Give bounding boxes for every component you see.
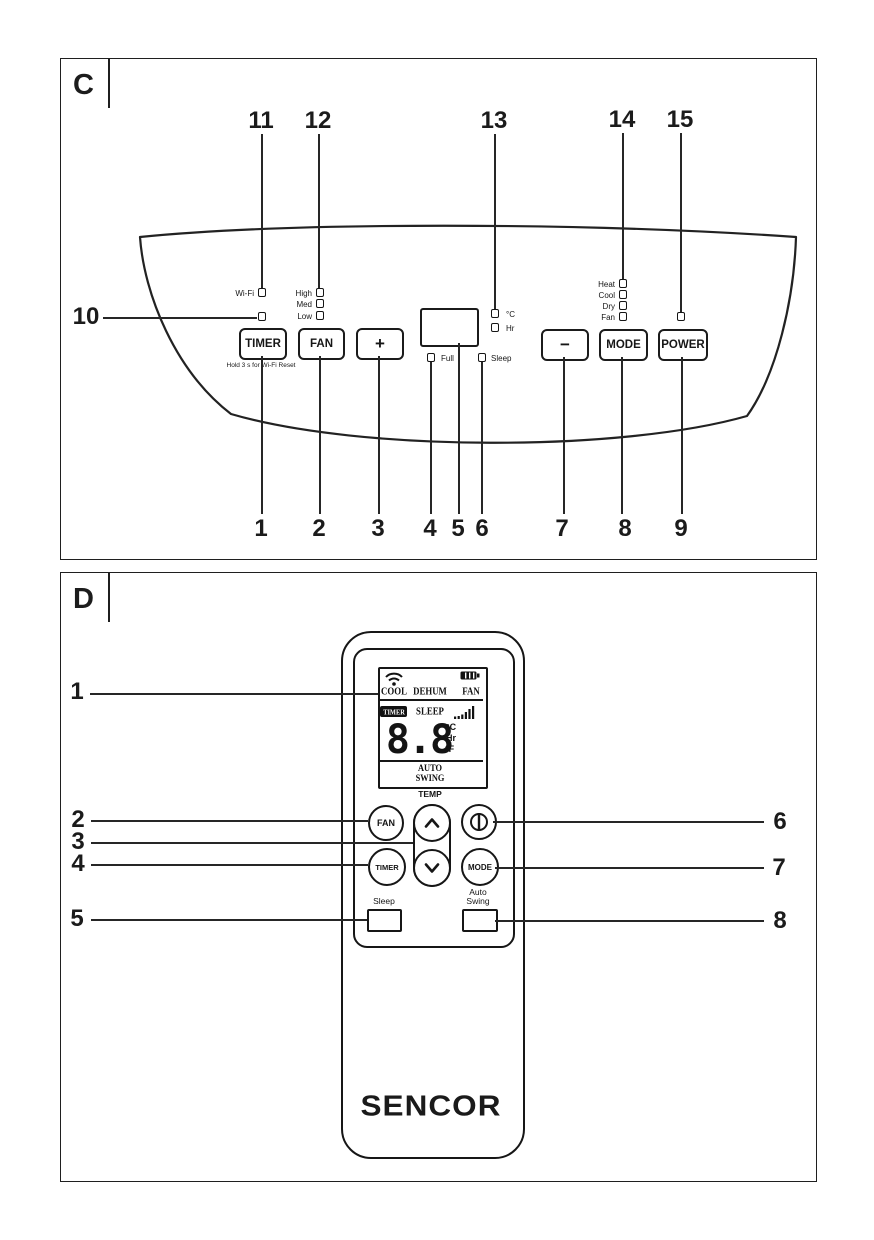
callout-3: 3 <box>371 515 384 543</box>
timer-led <box>258 312 266 321</box>
sleep-label: Sleep <box>491 355 511 363</box>
callout-11: 11 <box>248 107 273 135</box>
lcd-fan: FAN <box>462 687 479 698</box>
power-button: POWER <box>658 329 708 361</box>
remote-power-button <box>461 804 497 840</box>
callout-d4: 4 <box>71 850 84 878</box>
hr-led <box>491 323 499 332</box>
callout-d8: 8 <box>773 907 786 935</box>
callout-line-10 <box>103 317 257 319</box>
dry-led <box>619 301 627 310</box>
figure-d-label: D <box>73 583 94 616</box>
cool-label: Cool <box>579 292 615 300</box>
fan-low-led <box>316 311 324 320</box>
fan-med-label: Med <box>276 301 312 309</box>
callout-d5: 5 <box>70 905 83 933</box>
lcd-swing: SWING <box>416 774 445 784</box>
lcd-unit-celsius: °C <box>446 723 456 732</box>
callout-line-3 <box>378 356 380 514</box>
heat-label: Heat <box>579 281 615 289</box>
lcd-auto: AUTO <box>418 764 442 774</box>
callout-7: 7 <box>555 515 568 543</box>
callout-line-d7 <box>495 867 764 869</box>
callout-line-d4 <box>91 864 368 866</box>
figure-d-separator <box>108 573 110 622</box>
remote-autoswing-label-2: Swing <box>466 897 489 906</box>
callout-line-5 <box>458 343 460 514</box>
callout-line-d1 <box>90 693 378 695</box>
lcd-dehum: DEHUM <box>413 687 447 698</box>
figure-c-frame: C 11 12 13 14 15 10 Wi-Fi High Med Low <box>60 58 817 560</box>
callout-8: 8 <box>618 515 631 543</box>
temp-down-button <box>413 849 451 887</box>
callout-d1: 1 <box>70 678 83 706</box>
callout-line-1 <box>261 356 263 514</box>
fan-high-led <box>316 288 324 297</box>
remote-sleep-label: Sleep <box>373 897 395 906</box>
mode-button: MODE <box>599 329 648 361</box>
callout-line-6 <box>481 362 483 514</box>
power-led <box>677 312 685 321</box>
lcd-cool: COOL <box>381 687 407 698</box>
callout-line-8 <box>621 357 623 514</box>
callout-4: 4 <box>423 515 436 543</box>
callout-line-2 <box>319 356 321 514</box>
plus-button: + <box>356 328 404 360</box>
fan-mode-label: Fan <box>579 314 615 322</box>
fan-low-label: Low <box>276 313 312 321</box>
callout-5: 5 <box>451 515 464 543</box>
lcd-divider-bottom <box>379 760 483 762</box>
callout-d6: 6 <box>773 808 786 836</box>
fan-button: FAN <box>298 328 345 360</box>
cool-led <box>619 290 627 299</box>
dry-label: Dry <box>579 303 615 311</box>
fan-high-label: High <box>276 290 312 298</box>
callout-line-9 <box>681 357 683 514</box>
battery-icon <box>460 671 480 680</box>
fan-mode-led <box>619 312 627 321</box>
callout-line-d2 <box>91 820 368 822</box>
temp-label: TEMP <box>418 790 442 799</box>
remote-timer-button: TIMER <box>368 848 406 886</box>
lcd-digits: 8.8 <box>386 717 452 763</box>
full-led <box>427 353 435 362</box>
celsius-led <box>491 309 499 318</box>
chevron-up-icon <box>424 818 440 828</box>
callout-9: 9 <box>674 515 687 543</box>
hr-label: Hr <box>506 325 514 333</box>
remote-autoswing-button <box>462 909 498 932</box>
callout-line-d6 <box>493 821 764 823</box>
signal-bars-icon <box>454 705 478 719</box>
callout-line-11 <box>261 134 263 290</box>
timer-button: TIMER <box>239 328 287 360</box>
lcd-divider-top <box>379 699 483 701</box>
brand-logo: SENCOR <box>360 1091 501 1123</box>
full-label: Full <box>441 355 454 363</box>
callout-10: 10 <box>73 303 100 331</box>
figure-d-frame: D COOL DEHUM FAN TIMER SLEEP <box>60 572 817 1182</box>
remote-fan-button: FAN <box>368 805 404 841</box>
callout-line-7 <box>563 357 565 514</box>
remote-mode-button: MODE <box>461 848 499 886</box>
lcd-unit-hr: Hr <box>446 734 456 743</box>
panel-display <box>420 308 479 347</box>
fan-med-led <box>316 299 324 308</box>
heat-led <box>619 279 627 288</box>
minus-button: − <box>541 329 589 361</box>
lcd-sleep: SLEEP <box>416 707 444 718</box>
callout-line-d3 <box>91 842 413 844</box>
lcd-unit-fahrenheit: °F <box>445 745 454 754</box>
callout-1: 1 <box>254 515 267 543</box>
callout-line-4 <box>430 362 432 514</box>
lcd-timer-badge: TIMER <box>380 706 407 717</box>
callout-15: 15 <box>667 106 694 134</box>
wifi-led <box>258 288 266 297</box>
callout-13: 13 <box>481 107 508 135</box>
wifi-icon <box>384 671 404 687</box>
callout-line-14 <box>622 133 624 280</box>
manual-page: C 11 12 13 14 15 10 Wi-Fi High Med Low <box>0 0 874 1240</box>
callout-14: 14 <box>609 106 636 134</box>
callout-line-13 <box>494 134 496 311</box>
callout-line-d5 <box>91 919 367 921</box>
callout-2: 2 <box>312 515 325 543</box>
remote-sleep-button <box>367 909 402 932</box>
power-icon <box>468 811 490 833</box>
sleep-led <box>478 353 486 362</box>
callout-d7: 7 <box>772 854 785 882</box>
callout-line-15 <box>680 133 682 314</box>
temp-up-button <box>413 804 451 842</box>
wifi-led-label: Wi-Fi <box>216 290 254 298</box>
callout-12: 12 <box>305 107 332 135</box>
lcd-timer-text: TIMER <box>383 707 405 716</box>
callout-line-12 <box>318 134 320 290</box>
celsius-label: °C <box>506 311 515 319</box>
callout-line-d8 <box>495 920 764 922</box>
chevron-down-icon <box>424 863 440 873</box>
callout-6: 6 <box>475 515 488 543</box>
